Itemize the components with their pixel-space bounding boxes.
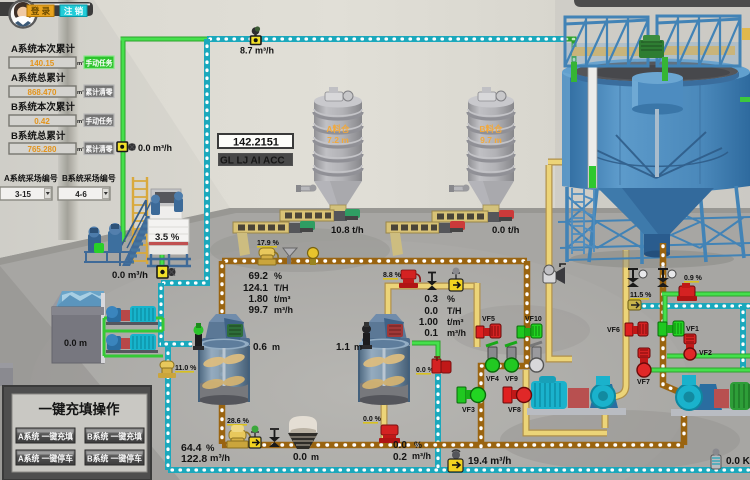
svg-text:0.0: 0.0 [424,306,438,317]
svg-text:B系统 一键停车: B系统 一键停车 [87,454,142,464]
svg-text:765.280: 765.280 [28,145,57,154]
svg-text:m³: m³ [77,146,84,153]
svg-text:VF5: VF5 [482,316,495,323]
svg-text:1.80: 1.80 [249,294,269,305]
svg-text:VF3: VF3 [462,407,475,414]
svg-text:0.0 m: 0.0 m [64,338,87,348]
svg-text:0.9 %: 0.9 % [684,275,703,282]
svg-text:GL LJ AI ACC: GL LJ AI ACC [220,156,285,167]
svg-text:140.15: 140.15 [30,59,55,68]
svg-text:A系统采场编号: A系统采场编号 [4,173,58,183]
svg-text:一键充填操作: 一键充填操作 [39,401,120,417]
svg-text:手动任务: 手动任务 [86,116,113,126]
svg-text:B系统采场编号: B系统采场编号 [62,173,116,183]
svg-text:122.8: 122.8 [181,453,207,465]
svg-text:9.7 m: 9.7 m [480,135,502,145]
svg-text:T/H: T/H [447,306,462,316]
svg-text:1.00: 1.00 [419,317,439,328]
svg-text:0.0 Kg: 0.0 Kg [726,456,750,467]
svg-text:m³: m³ [77,60,84,67]
svg-text:1.1: 1.1 [336,342,350,353]
svg-text:m³/h: m³/h [412,451,431,461]
svg-text:m³: m³ [77,118,84,125]
svg-text:0.1: 0.1 [424,328,438,339]
svg-text:0.0 m³/h: 0.0 m³/h [112,270,148,281]
svg-text:124.1: 124.1 [243,283,268,294]
svg-text:登 录: 登 录 [30,6,51,16]
svg-text:%: % [447,294,455,304]
svg-text:T/H: T/H [274,283,289,293]
svg-text:99.7: 99.7 [249,305,269,316]
svg-text:11.5 %: 11.5 % [630,292,652,299]
svg-text:m³: m³ [77,89,84,96]
svg-text:A系统本次累计: A系统本次累计 [11,43,75,55]
svg-text:0.0: 0.0 [293,452,307,463]
svg-text:t/m³: t/m³ [274,294,291,304]
svg-text:0.6: 0.6 [253,342,267,353]
svg-text:4-6: 4-6 [75,190,87,199]
svg-text:0.0 t/h: 0.0 t/h [492,225,520,236]
svg-text:m: m [354,342,362,352]
svg-text:A料仓: A料仓 [326,124,350,134]
svg-text:m³/h: m³/h [447,328,466,338]
svg-text:11.0 %: 11.0 % [175,365,197,372]
svg-text:17.9 %: 17.9 % [257,240,280,247]
svg-text:m: m [272,342,280,352]
svg-text:B系统总累计: B系统总累计 [11,130,66,142]
svg-text:0.2: 0.2 [393,452,407,463]
svg-text:3.5 %: 3.5 % [155,232,180,243]
svg-text:0.0 m³/h: 0.0 m³/h [138,143,172,153]
svg-text:VF7: VF7 [637,379,650,386]
svg-text:B系统 一键充填: B系统 一键充填 [87,432,142,442]
svg-text:69.2: 69.2 [249,271,269,282]
svg-text:142.2151: 142.2151 [233,137,279,149]
svg-text:m: m [311,452,319,462]
svg-text:m³/h: m³/h [210,453,230,464]
svg-text:B系统本次累计: B系统本次累计 [11,101,75,113]
svg-text:8.7 m³/h: 8.7 m³/h [240,46,274,56]
svg-text:7.2 m: 7.2 m [327,135,349,145]
svg-text:868.470: 868.470 [28,88,57,97]
svg-text:VF10: VF10 [525,316,542,323]
svg-text:10.8 t/h: 10.8 t/h [331,225,364,236]
svg-text:A系统 一键停车: A系统 一键停车 [18,454,73,464]
svg-text:VF1: VF1 [686,326,699,333]
svg-text:累计清零: 累计清零 [86,87,113,97]
svg-text:0.0: 0.0 [393,440,407,451]
svg-text:B料仓: B料仓 [479,124,503,134]
svg-text:A系统 一键充填: A系统 一键充填 [18,432,73,442]
svg-text:VF9: VF9 [505,376,518,383]
svg-text:累计清零: 累计清零 [86,144,113,154]
svg-text:0.0 %: 0.0 % [363,416,382,423]
svg-text:VF8: VF8 [508,407,521,414]
svg-text:28.6 %: 28.6 % [227,418,250,425]
svg-text:VF2: VF2 [699,350,712,357]
svg-text:手动任务: 手动任务 [86,58,113,68]
svg-text:m³/h: m³/h [274,305,293,315]
svg-text:0.3: 0.3 [424,294,438,305]
svg-text:3-15: 3-15 [15,190,32,199]
svg-text:t/m³: t/m³ [447,317,464,327]
svg-text:19.4 m³/h: 19.4 m³/h [468,456,511,467]
svg-text:8.8 %: 8.8 % [383,272,402,279]
svg-text:注 销: 注 销 [64,6,84,16]
svg-text:0.42: 0.42 [34,117,50,126]
svg-text:VF4: VF4 [486,376,499,383]
svg-text:%: % [414,440,422,450]
svg-text:%: % [274,271,282,281]
svg-text:A系统总累计: A系统总累计 [11,72,66,84]
svg-text:VF6: VF6 [607,327,620,334]
